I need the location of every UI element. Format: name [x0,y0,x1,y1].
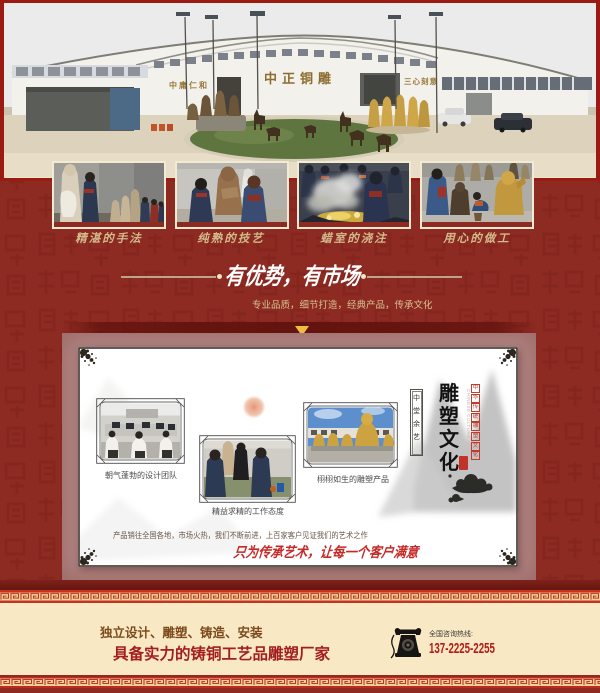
svg-text:中庸仁和: 中庸仁和 [169,80,209,90]
svg-text:中正铜雕: 中正铜雕 [264,71,336,86]
svg-text:三心刻意: 三心刻意 [404,76,438,86]
